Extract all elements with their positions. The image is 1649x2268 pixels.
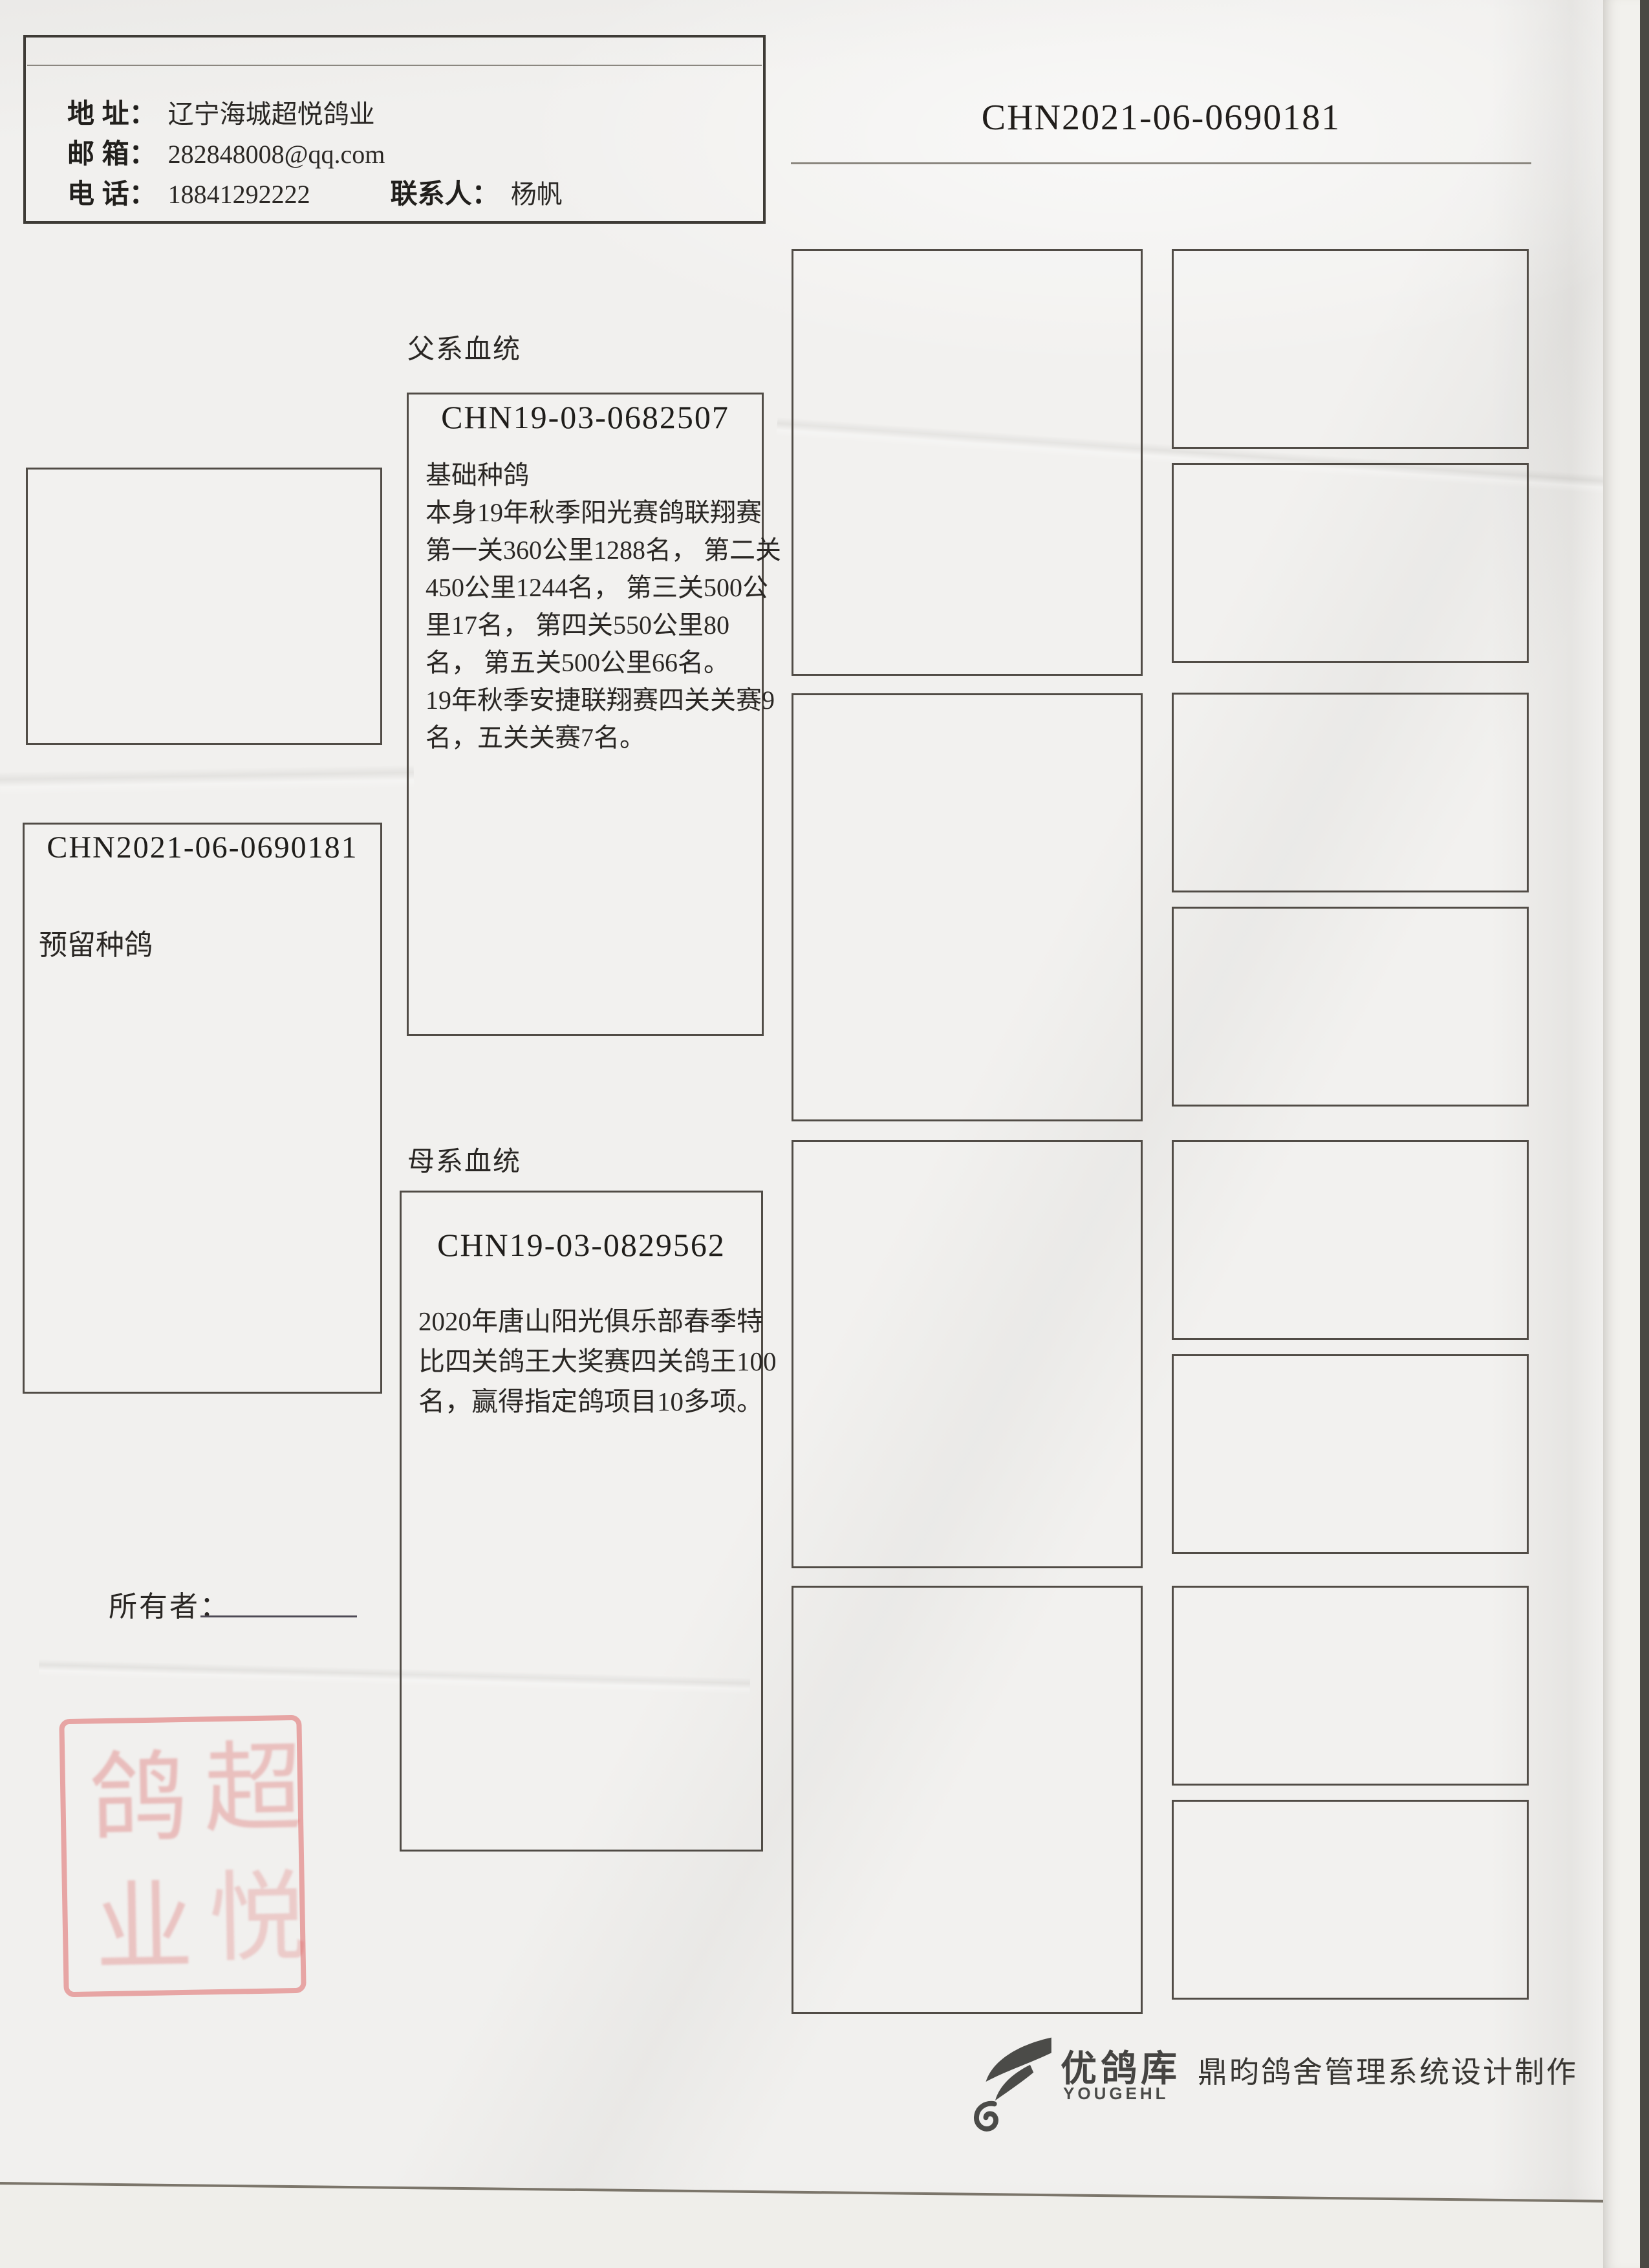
dam-pedigree-box: CHN19-03-0829562 2020年唐山阳光俱乐部春季特 比四关鸽王大奖… bbox=[400, 1191, 763, 1852]
contact-person-label: 联系人： bbox=[391, 178, 499, 209]
stamp-char: 鸽 bbox=[88, 1749, 188, 1850]
phone-value: 18841292222 bbox=[168, 180, 310, 209]
sire-section-label: 父系血统 bbox=[407, 327, 521, 367]
paper-sheet: 地 址：辽宁海城超悦鸽业 邮 箱：282848008@qq.com 电 话：18… bbox=[0, 0, 1603, 2268]
subject-ring-number: CHN2021-06-0690181 bbox=[25, 830, 380, 865]
stamp-char: 业 bbox=[94, 1879, 195, 1979]
divider-line bbox=[27, 65, 762, 66]
sire-description-line: 19年秋季安捷联翔赛四关关赛9 bbox=[426, 682, 781, 719]
pedigree-slot-great-grandparent bbox=[1172, 1354, 1529, 1554]
paper-crease bbox=[0, 764, 414, 795]
pedigree-slot-grandparent bbox=[792, 249, 1143, 676]
sire-description-line: 450公里1244名， 第三关500公 bbox=[426, 569, 781, 607]
pedigree-slot-grandparent bbox=[792, 1586, 1143, 2014]
pedigree-slot-great-grandparent bbox=[1172, 693, 1529, 892]
dam-description-line: 名，赢得指定鸽项目10多项。 bbox=[418, 1381, 777, 1421]
contact-info-box: 地 址：辽宁海城超悦鸽业 邮 箱：282848008@qq.com 电 话：18… bbox=[23, 35, 766, 224]
pedigree-slot-great-grandparent bbox=[1172, 1586, 1529, 1786]
contact-address-row: 地 址：辽宁海城超悦鸽业 bbox=[67, 92, 375, 131]
pedigree-slot-grandparent bbox=[792, 1140, 1143, 1568]
credit-text: 鼎昀鸽舍管理系统设计制作 bbox=[1198, 2049, 1578, 2091]
subject-pigeon-box: CHN2021-06-0690181 预留种鸽 bbox=[23, 823, 382, 1394]
breeder-stamp: 鸽 超 业 悦 bbox=[59, 1715, 306, 1997]
contact-person-value: 杨帆 bbox=[511, 180, 563, 209]
dam-description: 2020年唐山阳光俱乐部春季特 比四关鸽王大奖赛四关鸽王100 名，赢得指定鸽项… bbox=[418, 1301, 777, 1421]
contact-phone-row: 电 话：18841292222 联系人：杨帆 bbox=[67, 172, 563, 211]
email-label: 邮 箱： bbox=[67, 138, 156, 169]
address-label: 地 址： bbox=[67, 98, 156, 129]
sire-description-line: 里17名， 第四关550公里80 bbox=[426, 607, 781, 644]
sire-description: 基础种鸽 本身19年秋季阳光赛鸽联翔赛 第一关360公里1288名， 第二关 4… bbox=[426, 457, 781, 757]
address-value: 辽宁海城超悦鸽业 bbox=[168, 100, 375, 129]
sire-description-line: 名，五关关赛7名。 bbox=[426, 719, 781, 757]
sire-ring-number: CHN19-03-0682507 bbox=[409, 398, 762, 436]
photo-placeholder-box bbox=[26, 468, 382, 745]
yougehl-bird-logo-icon bbox=[969, 2036, 1054, 2133]
footer-logo-group: 优鸽库 YOUGEHL 鼎昀鸽舍管理系统设计制作 bbox=[969, 2031, 1590, 2147]
header-divider-line bbox=[791, 162, 1531, 164]
subject-note: 预留种鸽 bbox=[39, 922, 153, 963]
contact-email-row: 邮 箱：282848008@qq.com bbox=[67, 132, 385, 171]
stamp-characters: 鸽 超 业 悦 bbox=[64, 1720, 301, 1992]
owner-blank-line bbox=[200, 1615, 357, 1617]
sire-description-line: 本身19年秋季阳光赛鸽联翔赛 bbox=[426, 494, 781, 532]
pedigree-slot-great-grandparent bbox=[1172, 907, 1529, 1107]
pedigree-slot-great-grandparent bbox=[1172, 1140, 1529, 1340]
brand-latin-name: YOUGEHL bbox=[1063, 2084, 1169, 2104]
owner-label: 所有者： bbox=[109, 1583, 230, 1625]
sire-description-line: 第一关360公里1288名， 第二关 bbox=[426, 532, 781, 569]
scanned-pedigree-certificate: 地 址：辽宁海城超悦鸽业 邮 箱：282848008@qq.com 电 话：18… bbox=[0, 0, 1649, 2268]
dam-description-line: 比四关鸽王大奖赛四关鸽王100 bbox=[418, 1341, 777, 1381]
stamp-char: 悦 bbox=[208, 1869, 308, 1969]
scanner-edge-line bbox=[1640, 0, 1649, 2268]
page-ring-id: CHN2021-06-0690181 bbox=[791, 97, 1531, 138]
dam-ring-number: CHN19-03-0829562 bbox=[402, 1226, 761, 1264]
pedigree-slot-great-grandparent bbox=[1172, 1800, 1529, 2000]
dam-section-label: 母系血统 bbox=[407, 1139, 521, 1179]
pedigree-slot-grandparent bbox=[792, 693, 1143, 1121]
pedigree-slot-great-grandparent bbox=[1172, 463, 1529, 663]
dam-description-line: 2020年唐山阳光俱乐部春季特 bbox=[418, 1301, 777, 1341]
sire-description-line: 基础种鸽 bbox=[426, 457, 781, 494]
sire-pedigree-box: CHN19-03-0682507 基础种鸽 本身19年秋季阳光赛鸽联翔赛 第一关… bbox=[407, 393, 764, 1036]
stamp-char: 超 bbox=[203, 1740, 303, 1840]
pedigree-slot-great-grandparent bbox=[1172, 249, 1529, 449]
phone-label: 电 话： bbox=[67, 178, 156, 209]
sire-description-line: 名， 第五关500公里66名。 bbox=[426, 644, 781, 682]
email-value: 282848008@qq.com bbox=[168, 140, 385, 169]
